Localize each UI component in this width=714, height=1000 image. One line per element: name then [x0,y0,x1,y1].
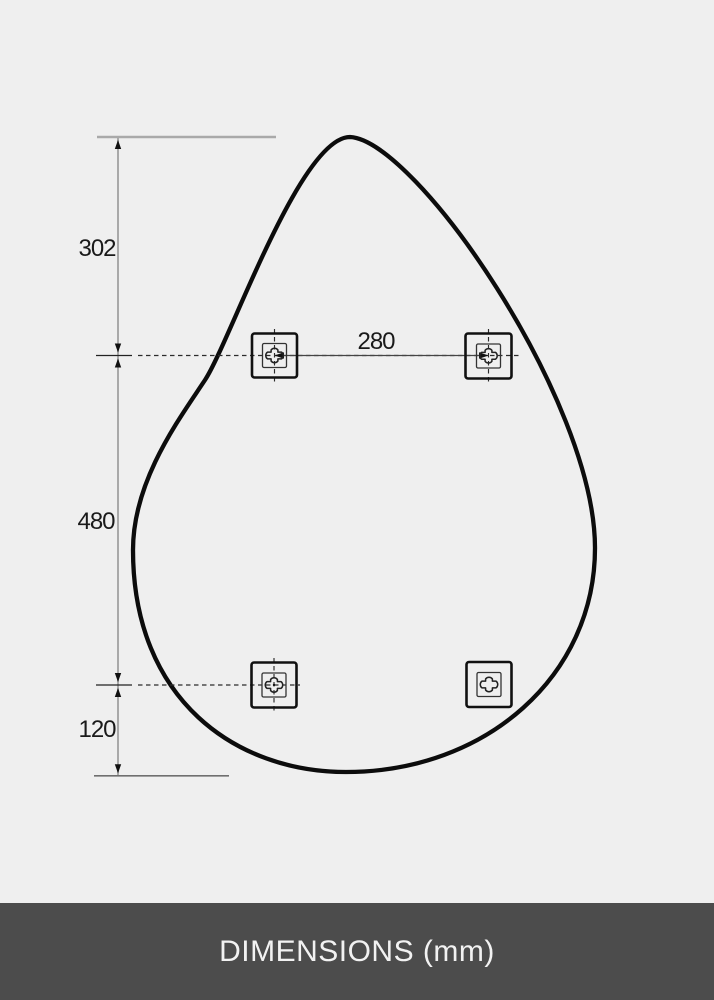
mirror-outline [133,137,595,772]
dimension-label-280: 280 [357,328,395,355]
arrow-up-icon [115,359,121,368]
dimension-sheet: 302 480 120 280 DIMENSIONS (mm) [0,0,714,1000]
bracket-bottom-right [467,662,512,707]
dimension-label-120: 120 [78,716,116,743]
arrow-down-icon [115,344,121,353]
arrow-up-icon [115,688,121,697]
dimension-diagram: 302 480 120 280 [0,0,714,903]
footer-title: DIMENSIONS (mm) [219,935,495,969]
footer-bar: DIMENSIONS (mm) [0,903,714,1000]
arrow-up-icon [115,140,121,149]
dimension-label-302: 302 [78,235,116,262]
arrow-down-icon [115,673,121,682]
dimension-label-480: 480 [77,508,115,535]
arrow-down-icon [115,764,121,773]
